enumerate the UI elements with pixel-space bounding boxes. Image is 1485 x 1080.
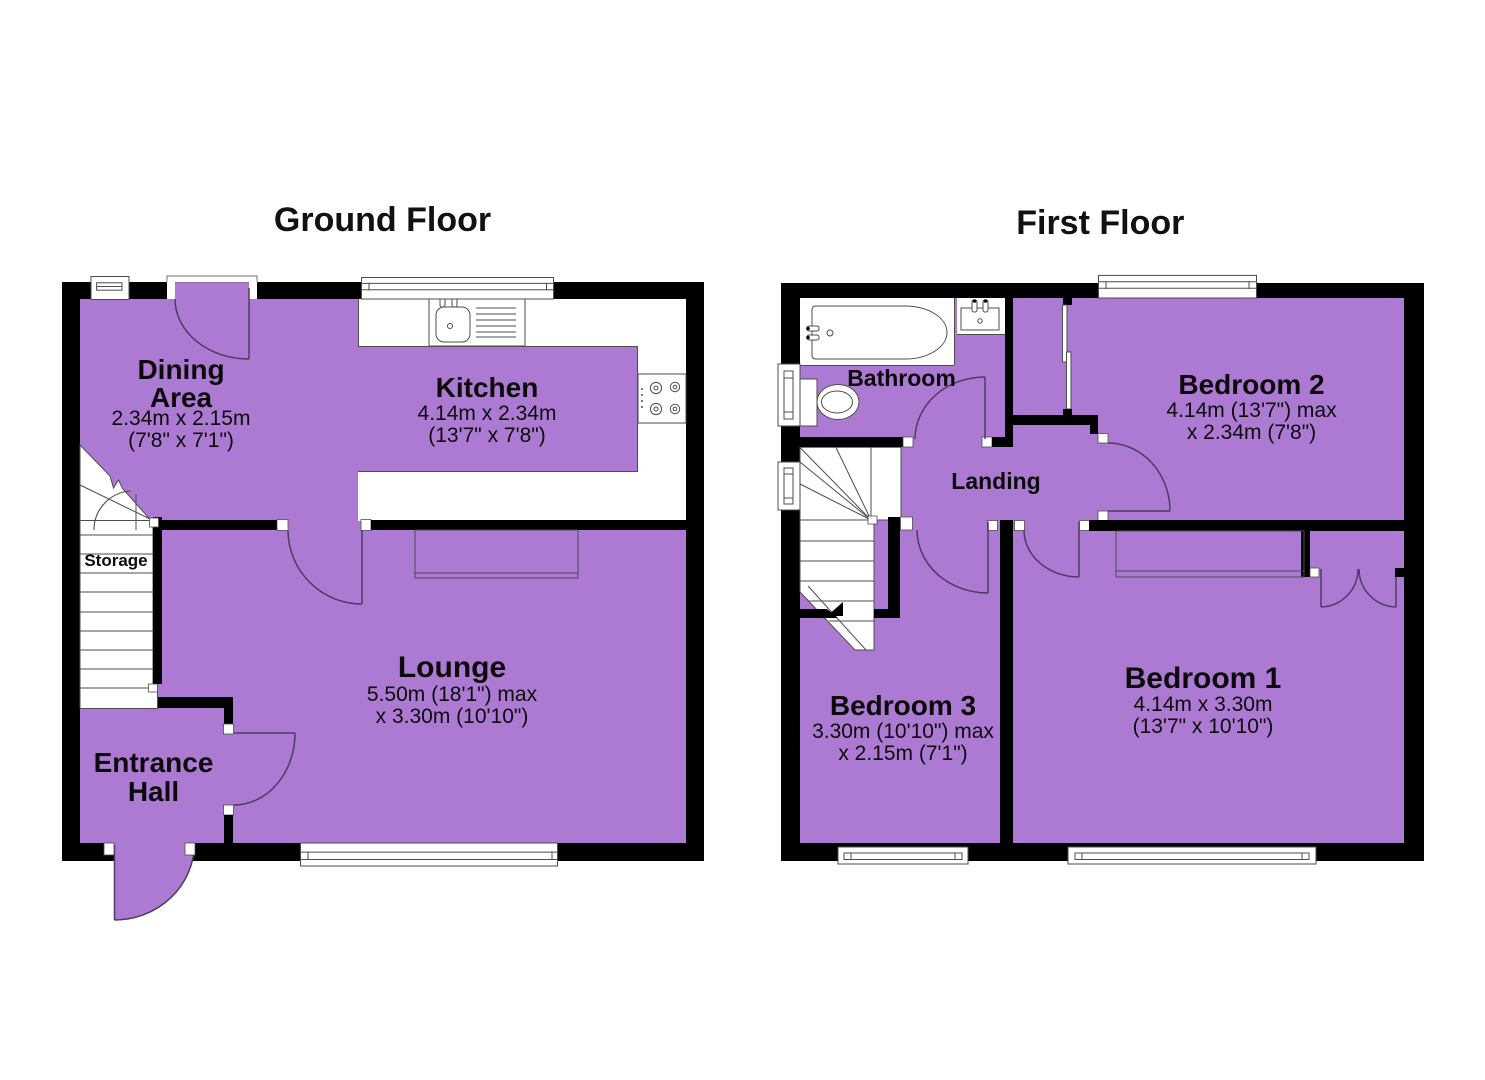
svg-text:Dining: Dining xyxy=(137,354,224,385)
svg-text:Bedroom 3: Bedroom 3 xyxy=(830,690,976,721)
svg-text:(13'7" x 7'8"): (13'7" x 7'8") xyxy=(428,424,545,447)
svg-text:Entrance: Entrance xyxy=(94,747,214,778)
svg-text:5.50m (18'1") max: 5.50m (18'1") max xyxy=(367,683,538,706)
svg-text:3.30m (10'10") max: 3.30m (10'10") max xyxy=(812,720,994,743)
svg-text:4.14m x 2.34m: 4.14m x 2.34m xyxy=(418,402,557,425)
svg-text:Kitchen: Kitchen xyxy=(436,372,539,403)
svg-text:(13'7" x 10'10"): (13'7" x 10'10") xyxy=(1133,715,1274,738)
svg-text:Bathroom: Bathroom xyxy=(847,365,956,391)
svg-text:Hall: Hall xyxy=(128,776,179,807)
svg-text:First Floor: First Floor xyxy=(1016,204,1184,242)
svg-text:Landing: Landing xyxy=(951,468,1040,494)
svg-text:Bedroom 1: Bedroom 1 xyxy=(1125,662,1282,695)
svg-text:(7'8" x 7'1"): (7'8" x 7'1") xyxy=(128,429,234,452)
svg-text:2.34m x 2.15m: 2.34m x 2.15m xyxy=(112,407,251,430)
svg-text:x 2.34m (7'8"): x 2.34m (7'8") xyxy=(1187,421,1316,444)
svg-text:x 3.30m (10'10"): x 3.30m (10'10") xyxy=(376,705,529,728)
svg-text:x 2.15m (7'1"): x 2.15m (7'1") xyxy=(838,742,967,765)
svg-text:Storage: Storage xyxy=(84,551,147,570)
svg-text:Bedroom 2: Bedroom 2 xyxy=(1178,369,1324,400)
svg-text:Ground Floor: Ground Floor xyxy=(274,201,491,239)
svg-text:4.14m (13'7") max: 4.14m (13'7") max xyxy=(1166,399,1337,422)
svg-text:4.14m x 3.30m: 4.14m x 3.30m xyxy=(1134,693,1273,716)
svg-text:Lounge: Lounge xyxy=(398,651,506,684)
